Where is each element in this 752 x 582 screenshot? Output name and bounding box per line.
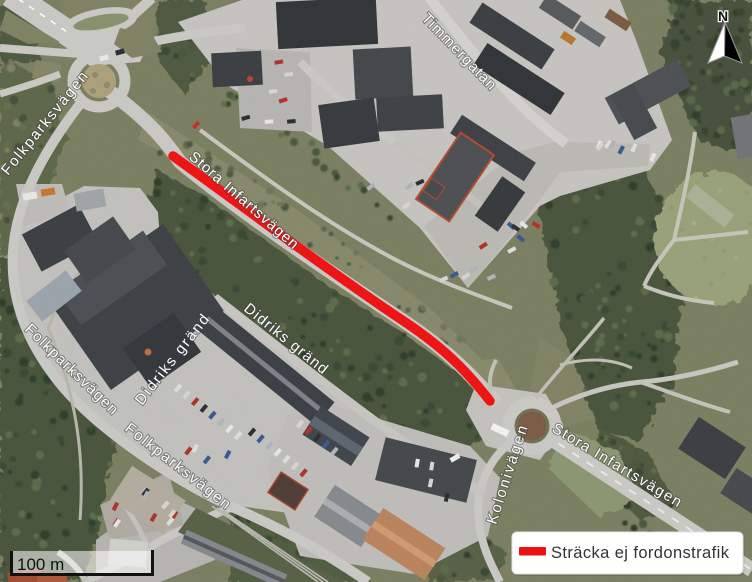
svg-text:N: N — [718, 8, 728, 24]
svg-text:Sträcka ej fordonstrafik: Sträcka ej fordonstrafik — [551, 544, 730, 562]
svg-text:100 m: 100 m — [17, 555, 64, 574]
